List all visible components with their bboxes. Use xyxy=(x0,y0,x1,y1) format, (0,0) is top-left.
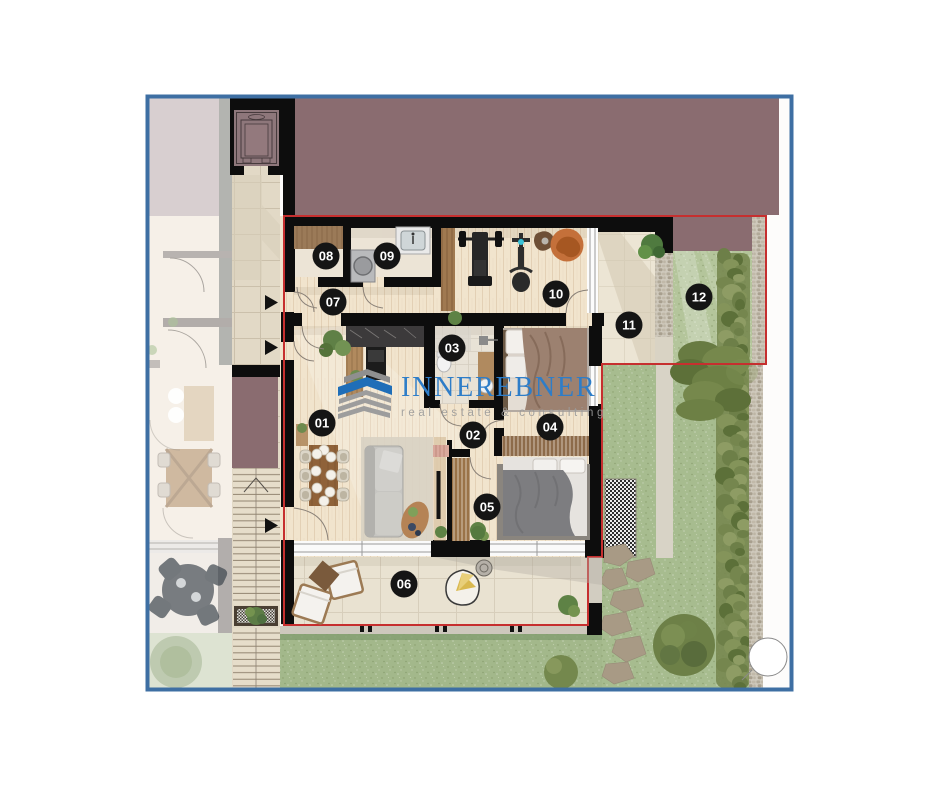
svg-text:05: 05 xyxy=(480,500,494,515)
svg-text:08: 08 xyxy=(319,249,333,264)
svg-text:03: 03 xyxy=(445,341,459,356)
svg-text:12: 12 xyxy=(692,290,706,305)
svg-text:02: 02 xyxy=(466,428,480,443)
svg-text:01: 01 xyxy=(315,416,329,431)
svg-text:10: 10 xyxy=(549,287,563,302)
svg-text:07: 07 xyxy=(326,295,340,310)
svg-text:09: 09 xyxy=(380,249,394,264)
svg-text:06: 06 xyxy=(397,577,411,592)
svg-text:04: 04 xyxy=(543,420,558,435)
svg-text:real estate & consulting: real estate & consulting xyxy=(401,407,607,419)
svg-text:11: 11 xyxy=(622,318,636,333)
svg-text:INNEREBNER: INNEREBNER xyxy=(401,372,596,403)
